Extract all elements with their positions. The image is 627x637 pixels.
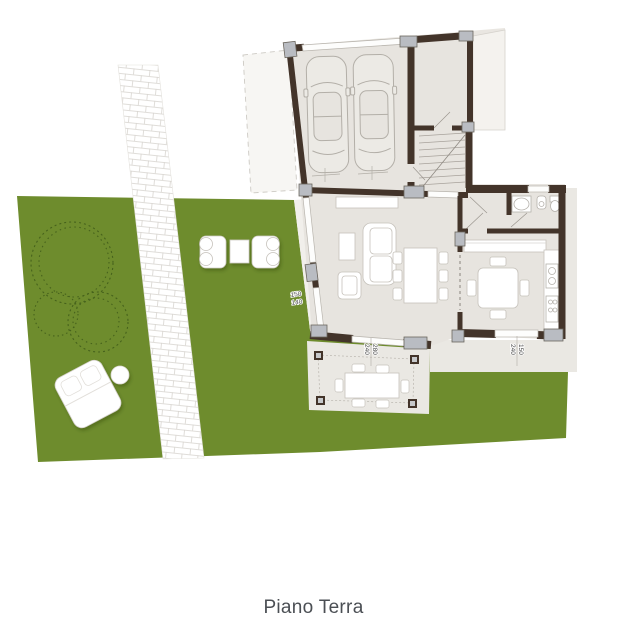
kitchen-counter-top xyxy=(464,240,546,252)
dim-living-left-height: 140 xyxy=(291,299,303,307)
dim-kitchen-window-width: 150 xyxy=(517,344,524,355)
kitchen-sink xyxy=(546,264,558,288)
plan-title: Piano Terra xyxy=(0,597,627,619)
entry-landing xyxy=(473,30,505,130)
coffee-table xyxy=(339,233,355,260)
garden-table xyxy=(230,240,249,263)
floor-plan-page: 150 140 280 240 150 240 Piano Terra xyxy=(0,0,627,637)
lounge-chair-left xyxy=(200,236,227,268)
dim-living-left-width: 150 xyxy=(290,291,302,299)
lounge-chair-right xyxy=(252,236,280,268)
dim-living-bottom-height: 240 xyxy=(363,344,370,355)
dining-table xyxy=(393,248,448,303)
dim-living-bottom-width: 280 xyxy=(371,344,378,355)
bidet xyxy=(537,196,546,209)
kitchen-stove xyxy=(546,296,558,322)
garden-ball xyxy=(111,366,129,384)
car-icon xyxy=(303,56,352,173)
bathroom-sink xyxy=(512,196,531,212)
sofa xyxy=(363,223,396,285)
dim-kitchen-window-height: 240 xyxy=(509,344,516,355)
paving-south-kitchen xyxy=(430,340,572,372)
sideboard xyxy=(336,197,398,208)
car-icon xyxy=(350,54,398,171)
armchair xyxy=(338,272,361,299)
floor-plan-drawing: 150 140 280 240 150 240 xyxy=(0,0,627,637)
garden-lounge-set xyxy=(200,236,280,268)
